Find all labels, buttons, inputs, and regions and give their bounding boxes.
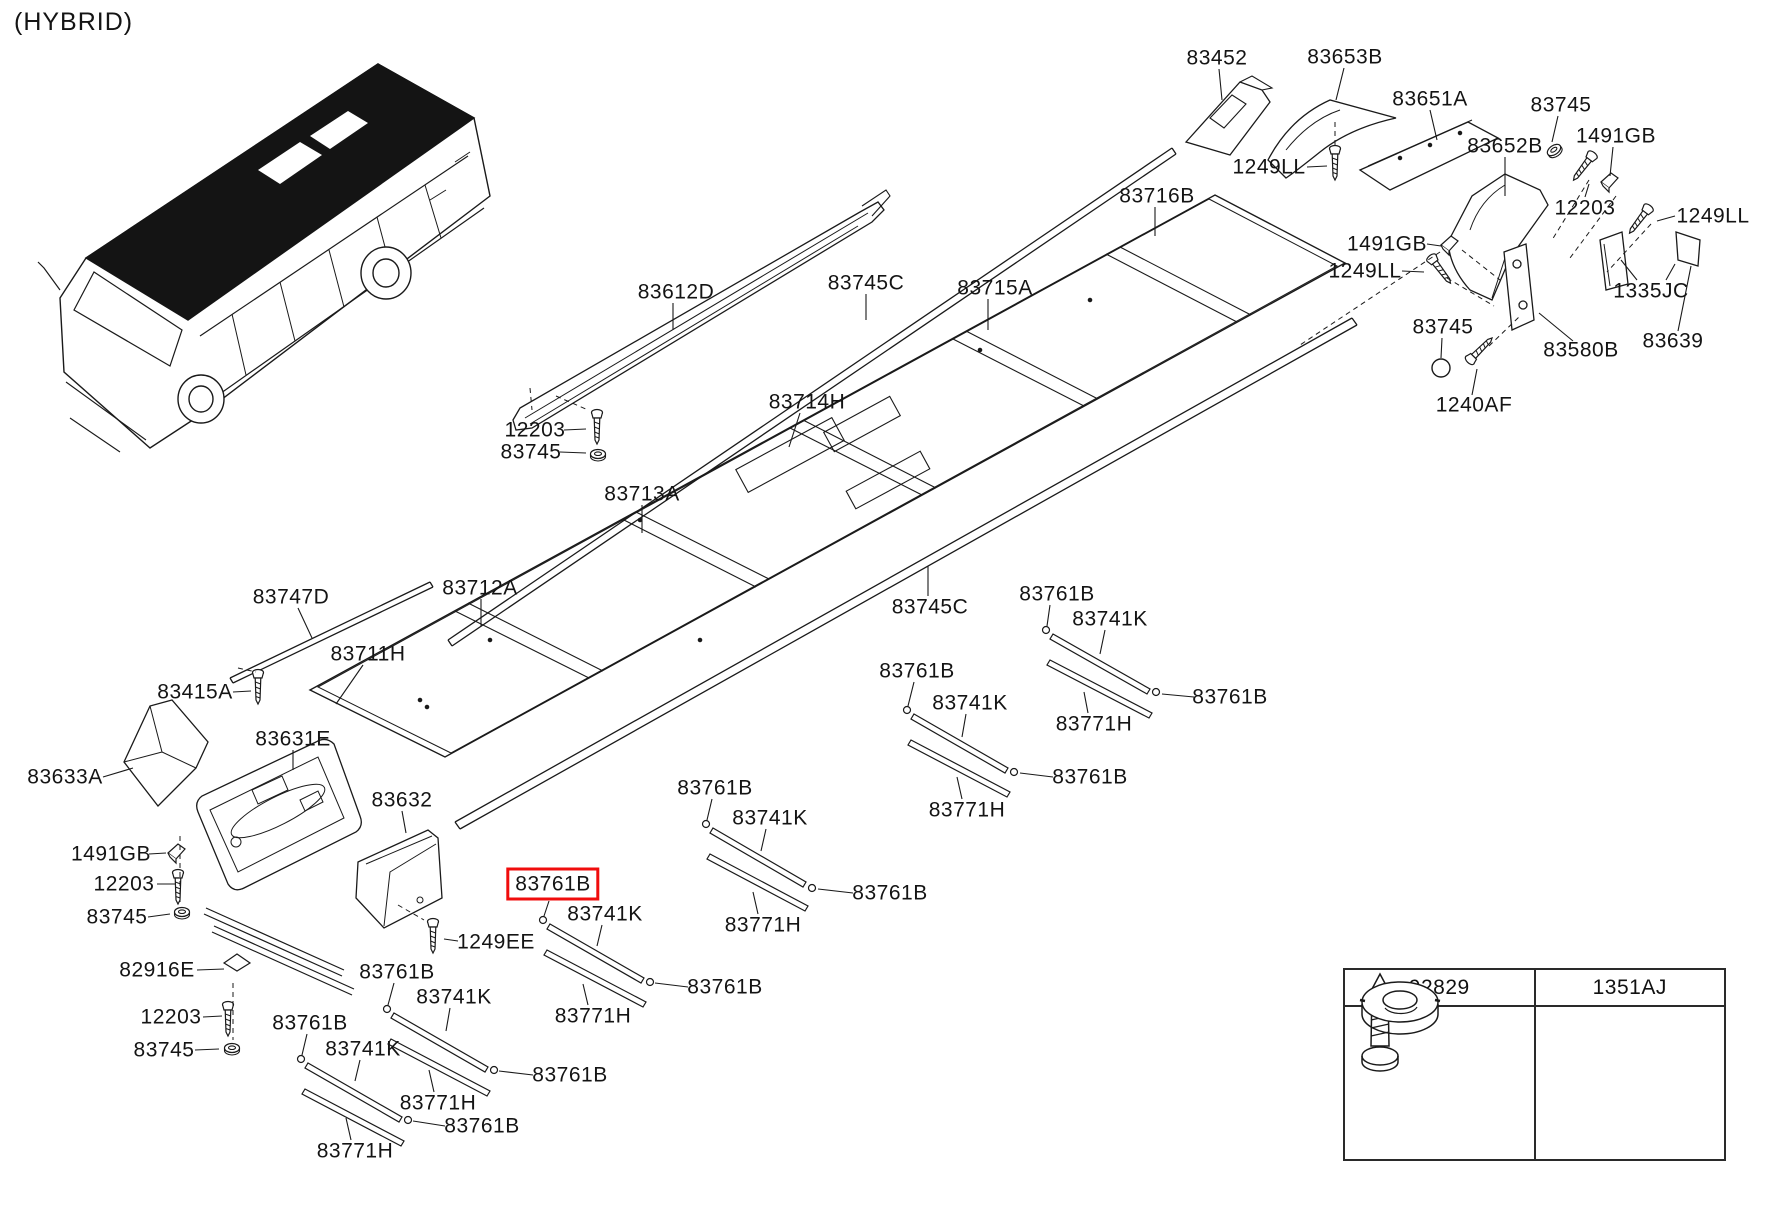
part-number-label[interactable]: 83745C: [828, 273, 905, 294]
part-number-label[interactable]: 83716B: [1119, 186, 1194, 207]
part-number-label[interactable]: 83631E: [255, 729, 330, 750]
part-number-label[interactable]: 1335JC: [1613, 281, 1688, 302]
part-number-label[interactable]: 83741K: [567, 904, 642, 925]
part-number-label[interactable]: 83771H: [400, 1093, 477, 1114]
part-number-label[interactable]: 1249LL: [1232, 157, 1305, 178]
part-number-label[interactable]: 83761B: [852, 883, 927, 904]
part-number-label[interactable]: 83639: [1643, 331, 1704, 352]
part-number-label[interactable]: 83745: [87, 907, 148, 928]
part-number-label[interactable]: 83652B: [1467, 136, 1542, 157]
part-number-label[interactable]: 83741K: [325, 1039, 400, 1060]
part-number-label[interactable]: 83713A: [604, 484, 679, 505]
part-number-label[interactable]: 83715A: [957, 278, 1032, 299]
part-number-label[interactable]: 83580B: [1543, 340, 1618, 361]
part-number-label[interactable]: 1491GB: [71, 844, 151, 865]
part-number-label[interactable]: 1249LL: [1676, 206, 1749, 227]
part-number-label[interactable]: 83771H: [929, 800, 1006, 821]
part-number-label[interactable]: 83745C: [892, 597, 969, 618]
part-number-label[interactable]: 83771H: [555, 1006, 632, 1027]
part-number-label[interactable]: 83761B: [1019, 584, 1094, 605]
part-number-label[interactable]: 83761B: [879, 661, 954, 682]
part-number-label[interactable]: 83651A: [1392, 89, 1467, 110]
part-number-label[interactable]: 83452: [1187, 48, 1248, 69]
part-number-label[interactable]: 1491GB: [1576, 126, 1656, 147]
part-number-label[interactable]: 82916E: [119, 960, 194, 981]
part-number-label[interactable]: 83771H: [317, 1141, 394, 1162]
part-number-label[interactable]: 83714H: [769, 392, 846, 413]
part-number-label[interactable]: 12203: [1555, 198, 1616, 219]
part-number-label[interactable]: 12203: [141, 1007, 202, 1028]
part-number-label[interactable]: 83761B: [1192, 687, 1267, 708]
part-number-label[interactable]: 83741K: [932, 693, 1007, 714]
part-number-label[interactable]: 12203: [94, 874, 155, 895]
part-number-label[interactable]: 83415A: [157, 682, 232, 703]
part-number-label[interactable]: 83761B: [359, 962, 434, 983]
part-number-label[interactable]: 83712A: [442, 578, 517, 599]
part-number-label[interactable]: 1240AF: [1436, 395, 1513, 416]
grommet-icon: [1345, 970, 1455, 1045]
part-number-label[interactable]: 83761B: [687, 977, 762, 998]
variant-label: (HYBRID): [14, 8, 133, 37]
part-number-label[interactable]: 83745: [1531, 95, 1592, 116]
legend-cell-grommet: [1536, 1007, 1725, 1159]
part-number-label[interactable]: 83771H: [1056, 714, 1133, 735]
legend-table: 92829 1351AJ: [1343, 968, 1726, 1161]
part-number-label[interactable]: 83741K: [732, 808, 807, 829]
part-number-label[interactable]: 1491GB: [1347, 234, 1427, 255]
part-number-label[interactable]: 83761B: [532, 1065, 607, 1086]
part-number-label[interactable]: 83741K: [416, 987, 491, 1008]
part-number-label[interactable]: 83747D: [253, 587, 330, 608]
legend-col-1351AJ: 1351AJ: [1536, 970, 1725, 1005]
part-number-label[interactable]: 83761B: [677, 778, 752, 799]
part-number-label[interactable]: 83745: [1413, 317, 1474, 338]
part-number-label[interactable]: 83761B: [444, 1116, 519, 1137]
part-number-label-selected[interactable]: 83761B: [506, 868, 599, 901]
part-number-label[interactable]: 83741K: [1072, 609, 1147, 630]
part-number-label[interactable]: 83711H: [330, 644, 405, 665]
part-number-label[interactable]: 83771H: [725, 915, 802, 936]
part-number-label[interactable]: 1249EE: [457, 932, 535, 953]
part-number-label[interactable]: 83745: [134, 1040, 195, 1061]
part-number-label[interactable]: 83761B: [1052, 767, 1127, 788]
roof-garnish-parts-diagram: 8345283653B83651A837451491GB83652B1249LL…: [0, 0, 1772, 1211]
part-number-label[interactable]: 83612D: [638, 282, 715, 303]
part-number-label[interactable]: 83653B: [1307, 47, 1382, 68]
part-number-label[interactable]: 83632: [372, 790, 433, 811]
part-number-label[interactable]: 83633A: [27, 767, 102, 788]
part-number-label[interactable]: 83745: [501, 442, 562, 463]
part-number-label[interactable]: 1249LL: [1328, 261, 1401, 282]
part-number-label[interactable]: 83761B: [272, 1013, 347, 1034]
part-number-label[interactable]: 12203: [505, 420, 566, 441]
